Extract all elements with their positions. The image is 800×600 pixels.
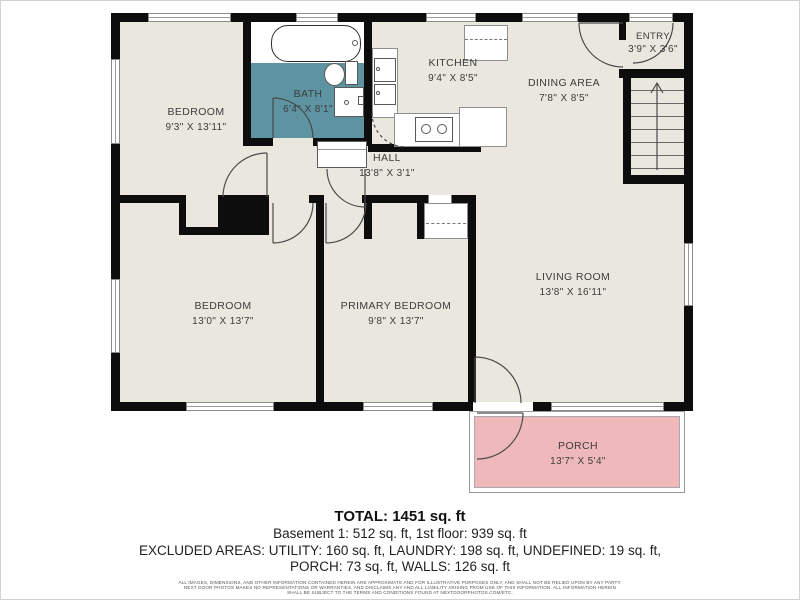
bathtub-faucet: [352, 40, 358, 46]
door-arc-living-porch: [475, 357, 521, 403]
room-label-porch: PORCH 13'7" X 5'4": [550, 439, 606, 469]
room-label-kitchen: KITCHEN 9'4" X 8'5": [428, 56, 478, 86]
window: [426, 13, 476, 22]
window: [296, 13, 338, 22]
floors-area-text: Basement 1: 512 sq. ft, 1st floor: 939 s…: [1, 526, 799, 543]
stairs-up-arrow-icon: [631, 78, 684, 175]
window: [186, 402, 274, 411]
wall-closet-divider: [417, 203, 424, 239]
refrigerator-dash-line: [465, 39, 507, 40]
wall-entry-stairs: [619, 69, 685, 78]
room-name: PRIMARY BEDROOM: [341, 299, 452, 314]
porch-door-opening: [473, 402, 533, 411]
total-area-text: TOTAL: 1451 sq. ft: [1, 508, 799, 526]
counter-corner-dashed: [372, 113, 406, 147]
room-label-hall: HALL 13'8" X 3'1": [359, 151, 415, 181]
door-arc-bedroom2: [273, 203, 313, 243]
room-name: BATH: [283, 87, 333, 102]
room-label-dining: DINING AREA 7'8" X 8'5": [528, 76, 600, 106]
wall-bedroom2-primary: [316, 195, 324, 411]
room-name: BEDROOM: [192, 299, 254, 314]
closet-door-break: [428, 195, 452, 203]
room-dims: 13'8" X 3'1": [359, 166, 415, 181]
wall-bath-kitchen: [364, 22, 372, 146]
room-label-bath: BATH 6'4" X 8'1": [283, 87, 333, 117]
room-name: HALL: [359, 151, 415, 166]
room-name: ENTRY: [628, 30, 678, 43]
room-name: DINING AREA: [528, 76, 600, 91]
window: [363, 402, 433, 411]
stove-burner: [437, 124, 447, 134]
room-dims: 9'3" X 13'11": [166, 120, 227, 135]
sink-drain: [344, 100, 349, 105]
door-arc-bedroom1: [223, 153, 267, 197]
room-dims: 9'4" X 8'5": [428, 71, 478, 86]
wall-hall-bottom-a: [111, 195, 186, 203]
room-dims: 7'8" X 8'5": [528, 91, 600, 106]
kitchen-peninsula: [459, 107, 507, 147]
window: [148, 13, 231, 22]
floor-plan-image: BEDROOM 9'3" X 13'11" BATH 6'4" X 8'1" K…: [0, 0, 800, 600]
room-label-bedroom1: BEDROOM 9'3" X 13'11": [166, 105, 227, 135]
room-label-bedroom2: BEDROOM 13'0" X 13'7": [192, 299, 254, 329]
door-arc-porch: [477, 413, 523, 459]
summary-block: TOTAL: 1451 sq. ft Basement 1: 512 sq. f…: [1, 508, 799, 596]
excluded-areas-text-2: PORCH: 73 sq. ft, WALLS: 126 sq. ft: [1, 559, 799, 576]
excluded-areas-text-1: EXCLUDED AREAS: UTILITY: 160 sq. ft, LAU…: [1, 543, 799, 560]
closet-rod-line: [426, 223, 466, 224]
room-dims: 6'4" X 8'1": [283, 102, 333, 117]
soap-dish: [358, 96, 364, 105]
door-arc-dining-entry: [579, 23, 623, 67]
room-name: LIVING ROOM: [536, 270, 610, 285]
room-dims: 9'8" X 13'7": [341, 314, 452, 329]
bathtub: [271, 25, 361, 62]
room-name: PORCH: [550, 439, 606, 454]
window: [111, 59, 120, 144]
wall-bath-bottom-left: [245, 138, 273, 146]
room-name: BEDROOM: [166, 105, 227, 120]
door-arc-primary-bedroom: [326, 203, 366, 243]
stove-burner: [421, 124, 431, 134]
window: [111, 279, 120, 353]
wall-bath-left: [243, 22, 251, 146]
room-dims: 3'9" X 3'6": [628, 43, 678, 56]
disclaimer-line: SHALL BE SUBJECT TO THE TERMS AND CONDIT…: [1, 590, 799, 595]
window: [629, 13, 673, 22]
toilet-bowl: [324, 63, 345, 86]
room-label-primary-bedroom: PRIMARY BEDROOM 9'8" X 13'7": [341, 299, 452, 329]
appliance-knob: [376, 91, 380, 95]
primary-closet: [424, 203, 468, 239]
room-dims: 13'0" X 13'7": [192, 314, 254, 329]
wall-stairs-left: [623, 69, 631, 184]
window: [551, 402, 664, 411]
room-label-entry: ENTRY 3'9" X 3'6": [628, 30, 678, 56]
toilet-tank: [345, 61, 358, 85]
wall-stairs-bottom: [623, 175, 685, 184]
room-name: KITCHEN: [428, 56, 478, 71]
appliance-knob: [376, 67, 380, 71]
window: [684, 243, 693, 306]
wall-right: [684, 13, 693, 411]
room-label-living-room: LIVING ROOM 13'8" X 16'11": [536, 270, 610, 300]
wall-hall-bottom-c: [362, 195, 476, 203]
window: [522, 13, 578, 22]
room-dims: 13'7" X 5'4": [550, 454, 606, 469]
chimney-block: [218, 195, 269, 235]
room-dims: 13'8" X 16'11": [536, 285, 610, 300]
disclaimer-text: ALL IMAGES, DIMENSIONS, AND OTHER INFORM…: [1, 580, 799, 596]
